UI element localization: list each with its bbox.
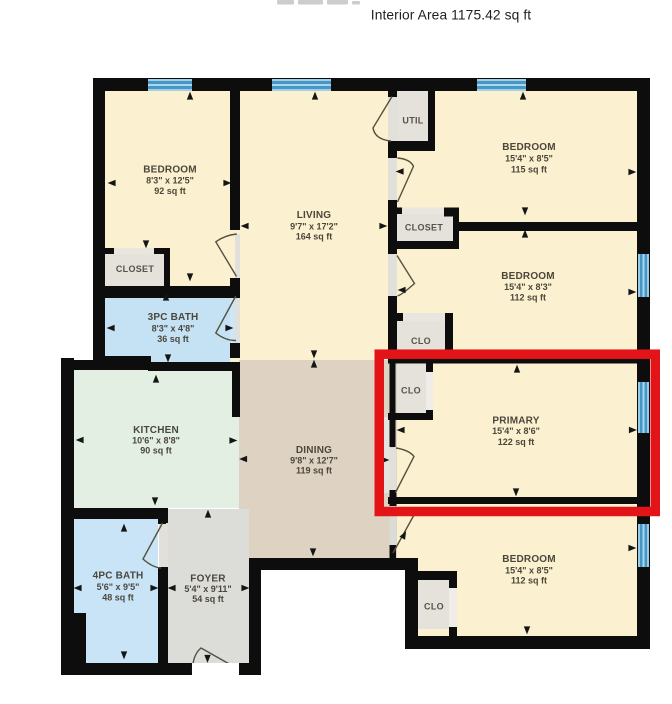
svg-text:48 sq ft: 48 sq ft	[102, 593, 134, 603]
svg-text:92 sq ft: 92 sq ft	[154, 186, 186, 196]
svg-text:FOYER: FOYER	[190, 574, 226, 585]
svg-text:164 sq ft: 164 sq ft	[296, 232, 333, 242]
svg-text:CLOSET: CLOSET	[116, 264, 155, 274]
svg-text:15'4" x 8'3": 15'4" x 8'3"	[504, 282, 552, 292]
svg-text:CLO: CLO	[401, 386, 421, 396]
svg-text:54 sq ft: 54 sq ft	[192, 594, 224, 604]
svg-text:112 sq ft: 112 sq ft	[510, 293, 546, 303]
svg-text:122 sq ft: 122 sq ft	[498, 437, 535, 447]
svg-text:15'4" x 8'5": 15'4" x 8'5"	[505, 153, 553, 163]
svg-text:9'7" x 17'2": 9'7" x 17'2"	[290, 222, 338, 232]
svg-text:CLO: CLO	[411, 336, 431, 346]
svg-text:DINING: DINING	[296, 445, 332, 456]
svg-text:115 sq ft: 115 sq ft	[511, 165, 547, 175]
svg-text:BEDROOM: BEDROOM	[502, 554, 556, 565]
svg-text:8'3" x 12'5": 8'3" x 12'5"	[146, 176, 194, 186]
svg-text:9'8" x 12'7": 9'8" x 12'7"	[290, 456, 338, 466]
svg-text:5'4" x 9'11": 5'4" x 9'11"	[184, 584, 231, 594]
svg-text:8'3" x 4'8": 8'3" x 4'8"	[152, 324, 195, 334]
svg-text:5'6" x 9'5": 5'6" x 9'5"	[97, 582, 140, 592]
svg-text:15'4" x 8'5": 15'4" x 8'5"	[505, 565, 553, 575]
svg-text:10'6" x 8'8": 10'6" x 8'8"	[132, 436, 180, 446]
svg-text:BEDROOM: BEDROOM	[501, 271, 555, 282]
svg-text:CLOSET: CLOSET	[405, 223, 444, 233]
svg-text:BEDROOM: BEDROOM	[143, 165, 197, 176]
svg-text:15'4" x 8'6": 15'4" x 8'6"	[492, 426, 540, 436]
svg-text:BEDROOM: BEDROOM	[502, 142, 556, 153]
svg-text:36 sq ft: 36 sq ft	[157, 334, 189, 344]
svg-text:4PC BATH: 4PC BATH	[93, 571, 144, 582]
svg-text:112 sq ft: 112 sq ft	[511, 576, 547, 586]
svg-text:PRIMARY: PRIMARY	[492, 416, 539, 427]
svg-text:90 sq ft: 90 sq ft	[140, 446, 172, 456]
svg-text:UTIL: UTIL	[402, 116, 423, 126]
svg-text:3PC BATH: 3PC BATH	[148, 312, 199, 323]
svg-text:LIVING: LIVING	[297, 210, 332, 221]
svg-text:Interior Area 1175.42 sq ft: Interior Area 1175.42 sq ft	[371, 8, 532, 23]
svg-text:119 sq ft: 119 sq ft	[296, 466, 332, 476]
svg-text:CLO: CLO	[424, 602, 444, 612]
svg-text:KITCHEN: KITCHEN	[133, 425, 179, 436]
